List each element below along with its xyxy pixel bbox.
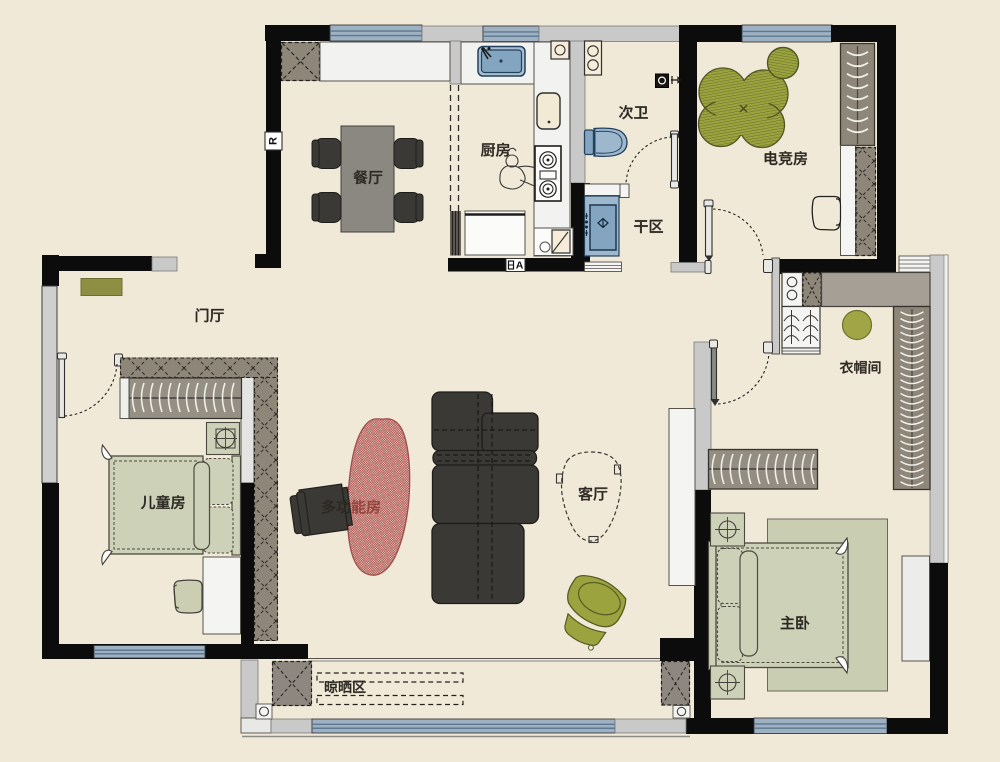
svg-text:A: A [516,260,524,272]
svg-text:R: R [267,137,279,145]
